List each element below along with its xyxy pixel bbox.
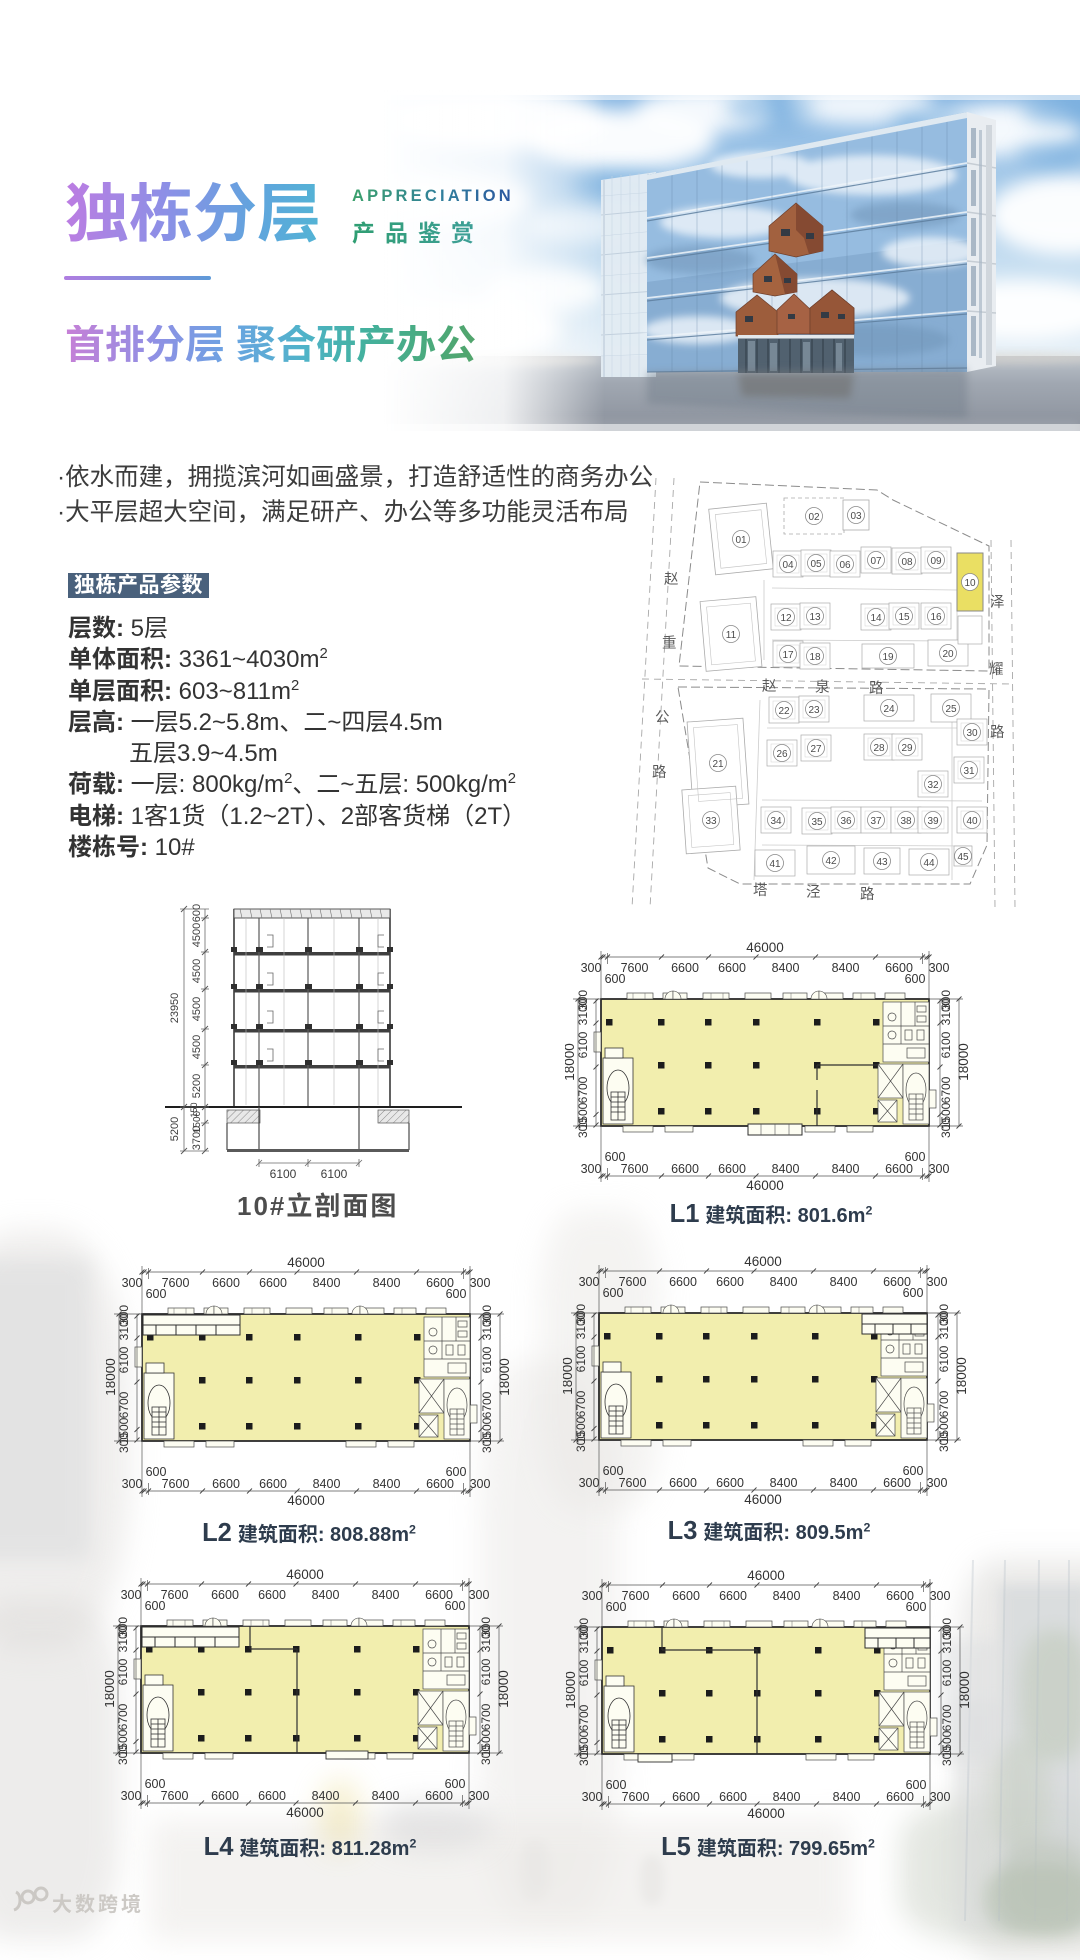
svg-text:39: 39: [927, 816, 939, 827]
svg-text:29: 29: [901, 743, 913, 754]
svg-text:6100: 6100: [321, 1167, 348, 1181]
svg-text:11: 11: [726, 630, 737, 641]
svg-text:28: 28: [873, 743, 885, 754]
svg-text:06: 06: [839, 560, 851, 571]
svg-text:4500: 4500: [191, 959, 203, 983]
svg-text:12: 12: [780, 613, 792, 624]
svg-text:18: 18: [809, 652, 821, 663]
svg-text:15: 15: [898, 612, 910, 623]
svg-text:4500: 4500: [191, 1035, 203, 1059]
svg-text:20: 20: [942, 649, 954, 660]
svg-text:25: 25: [945, 704, 957, 715]
svg-text:重: 重: [662, 635, 677, 652]
svg-text:42: 42: [825, 856, 837, 867]
svg-text:24: 24: [883, 704, 895, 715]
svg-text:14: 14: [870, 613, 882, 624]
svg-text:08: 08: [901, 557, 913, 568]
svg-text:05: 05: [810, 559, 822, 570]
svg-text:07: 07: [870, 556, 882, 567]
svg-text:44: 44: [923, 858, 935, 869]
svg-text:路: 路: [869, 680, 884, 697]
svg-text:34: 34: [770, 816, 782, 827]
svg-text:泉: 泉: [815, 679, 830, 696]
svg-text:600: 600: [191, 904, 203, 922]
svg-text:26: 26: [776, 749, 788, 760]
svg-text:泾: 泾: [806, 884, 821, 901]
svg-text:22: 22: [778, 706, 790, 717]
svg-text:27: 27: [810, 744, 822, 755]
svg-text:5200: 5200: [169, 1117, 181, 1141]
svg-text:40: 40: [966, 816, 978, 827]
svg-text:23950: 23950: [169, 993, 181, 1024]
svg-text:38: 38: [900, 816, 912, 827]
svg-text:16: 16: [930, 612, 942, 623]
svg-text:路: 路: [652, 764, 667, 781]
svg-text:泽: 泽: [990, 594, 1005, 611]
svg-text:31: 31: [963, 766, 975, 777]
svg-text:01: 01: [735, 535, 747, 546]
svg-text:13: 13: [809, 612, 821, 623]
svg-text:耀: 耀: [989, 661, 1004, 678]
svg-text:36: 36: [840, 816, 852, 827]
svg-text:23: 23: [808, 705, 820, 716]
svg-text:路: 路: [990, 724, 1005, 741]
svg-text:3700: 3700: [191, 1126, 203, 1150]
svg-text:37: 37: [870, 816, 882, 827]
svg-text:33: 33: [705, 816, 717, 827]
svg-text:02: 02: [808, 512, 820, 523]
svg-text:5200: 5200: [191, 1074, 203, 1098]
svg-text:30: 30: [966, 728, 978, 739]
svg-text:公: 公: [655, 710, 670, 726]
svg-text:21: 21: [712, 759, 724, 770]
svg-text:4500: 4500: [191, 997, 203, 1021]
svg-text:41: 41: [769, 859, 781, 870]
svg-text:35: 35: [811, 817, 823, 828]
svg-text:09: 09: [930, 556, 942, 567]
svg-text:03: 03: [850, 511, 862, 522]
svg-text:04: 04: [782, 560, 794, 571]
svg-text:43: 43: [876, 857, 888, 868]
svg-text:路: 路: [860, 886, 875, 903]
svg-text:32: 32: [927, 780, 939, 791]
svg-text:4500: 4500: [191, 923, 203, 947]
svg-text:19: 19: [882, 652, 894, 663]
svg-text:10: 10: [964, 578, 976, 589]
svg-text:17: 17: [782, 650, 794, 661]
svg-text:塔: 塔: [753, 882, 768, 899]
svg-text:赵: 赵: [664, 571, 679, 588]
svg-text:6100: 6100: [270, 1167, 297, 1181]
svg-text:赵: 赵: [762, 678, 777, 695]
svg-text:45: 45: [957, 852, 969, 863]
